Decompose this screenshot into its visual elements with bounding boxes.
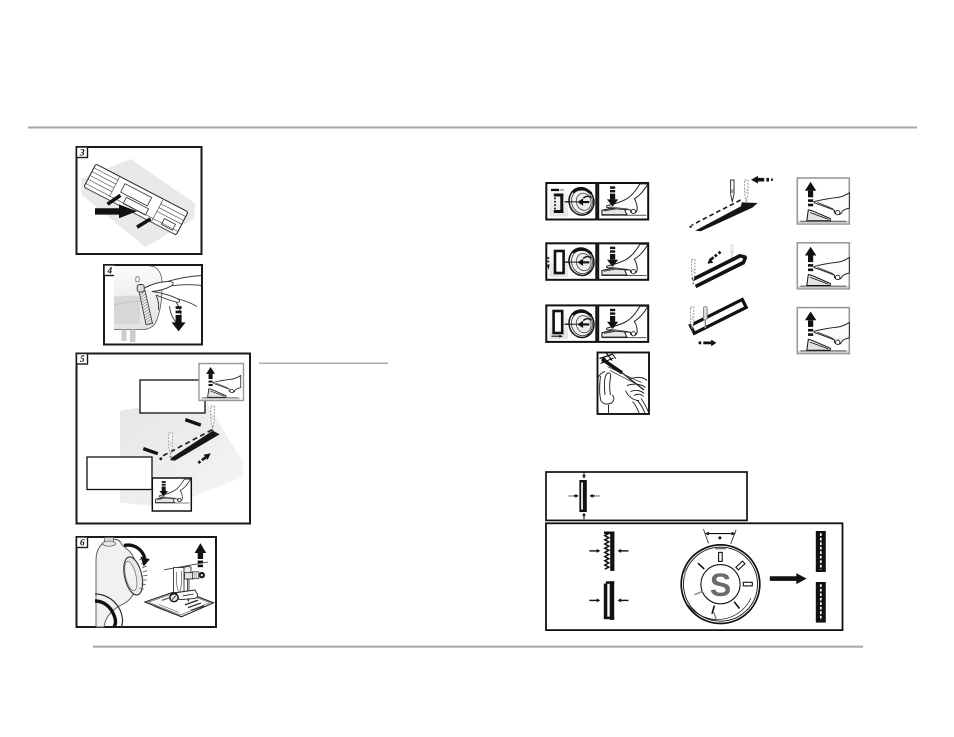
- svg-text:4: 4: [106, 267, 112, 277]
- svg-text:6: 6: [80, 539, 85, 549]
- svg-text:3: 3: [79, 149, 85, 159]
- svg-text:5: 5: [80, 355, 85, 365]
- svg-text:S: S: [710, 567, 731, 603]
